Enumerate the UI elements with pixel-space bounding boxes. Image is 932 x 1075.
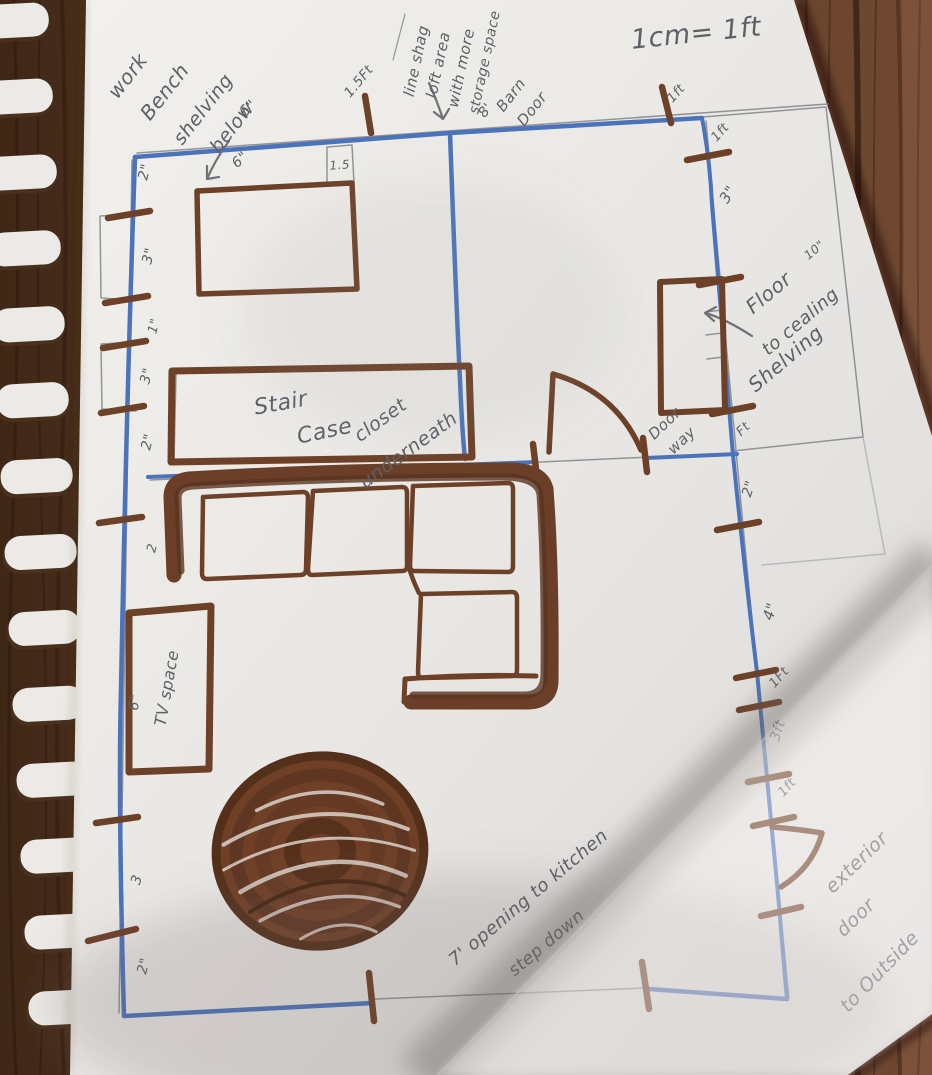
label-tv-size: 6" [126,693,145,712]
notebook-photo: 1cm= 1ft work Bench shelving below line … [0,0,932,1075]
meas-bench-box: 1.5 [329,157,351,172]
floor-plan-sketch: 1cm= 1ft work Bench shelving below line … [0,0,932,1075]
